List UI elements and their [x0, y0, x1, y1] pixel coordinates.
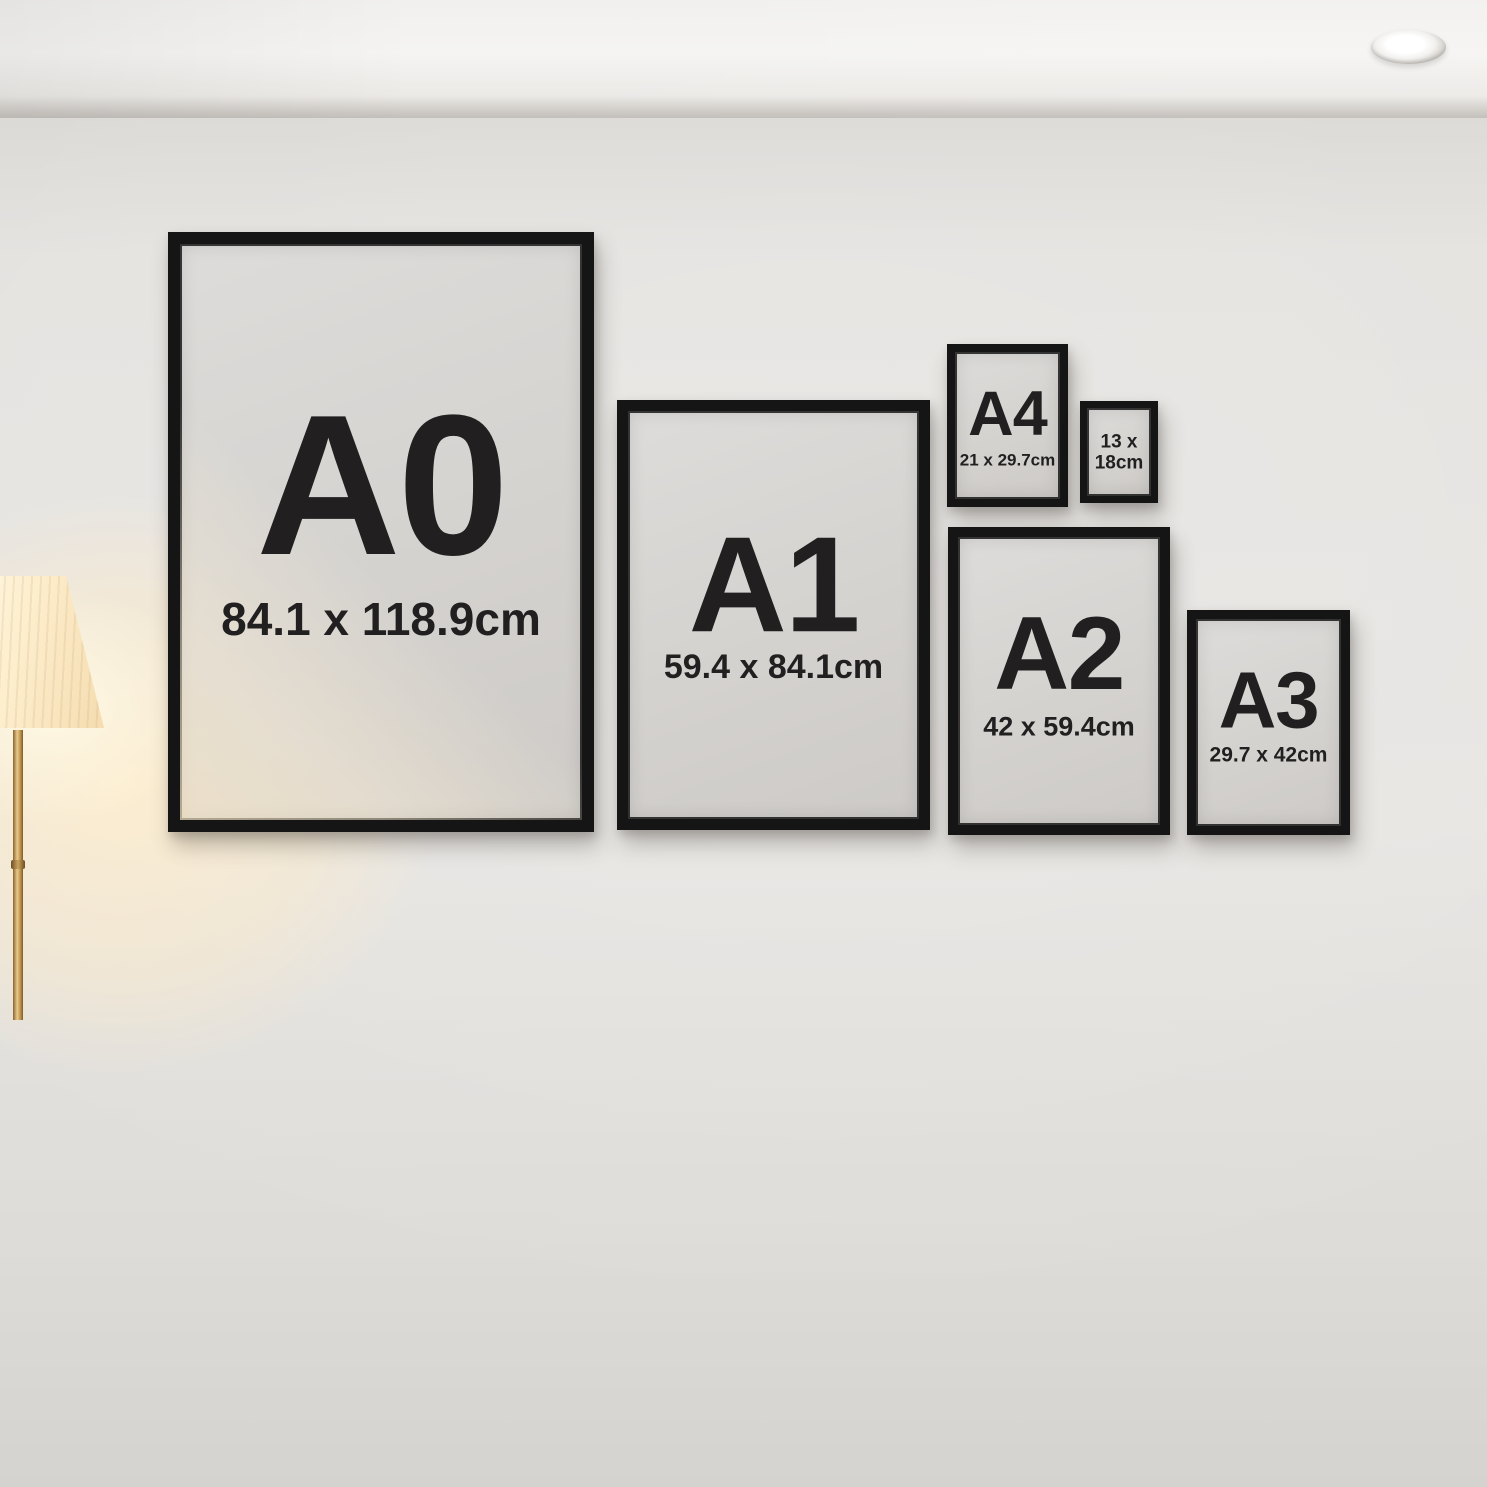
- paper-size-dimensions-line1: 13 x: [1101, 432, 1138, 453]
- paper-size-dimensions: 42 x 59.4cm: [948, 714, 1170, 741]
- poster-frame-13x18: 13 x 18cm: [1080, 401, 1158, 503]
- paper-size-dimensions: 29.7 x 42cm: [1187, 745, 1350, 766]
- poster-frame-a1: A1 59.4 x 84.1cm: [617, 400, 930, 830]
- living-room-scene: A0 84.1 x 118.9cm A1 59.4 x 84.1cm A4 21…: [0, 0, 1487, 1487]
- poster-frame-a3: A3 29.7 x 42cm: [1187, 610, 1350, 835]
- paper-size-dimensions: 59.4 x 84.1cm: [617, 650, 930, 684]
- paper-size-dimensions-line2: 18cm: [1095, 453, 1144, 474]
- paper-size-dimensions: 13 x 18cm: [1080, 432, 1158, 475]
- paper-size-label: A0: [168, 386, 594, 586]
- poster-frame-a0: A0 84.1 x 118.9cm: [168, 232, 594, 832]
- paper-size-dimensions: 21 x 29.7cm: [947, 451, 1068, 468]
- paper-size-label: A1: [617, 516, 930, 652]
- poster-frame-a4: A4 21 x 29.7cm: [947, 344, 1068, 507]
- paper-size-dimensions: 84.1 x 118.9cm: [168, 596, 594, 642]
- lamp-pole-joint: [11, 860, 25, 869]
- paper-size-label: A3: [1187, 661, 1350, 741]
- poster-frame-a2: A2 42 x 59.4cm: [948, 527, 1170, 835]
- recessed-ceiling-light: [1371, 30, 1446, 64]
- lamp-pole: [13, 730, 23, 1020]
- paper-size-label: A2: [948, 602, 1170, 706]
- paper-size-label: A4: [947, 383, 1068, 446]
